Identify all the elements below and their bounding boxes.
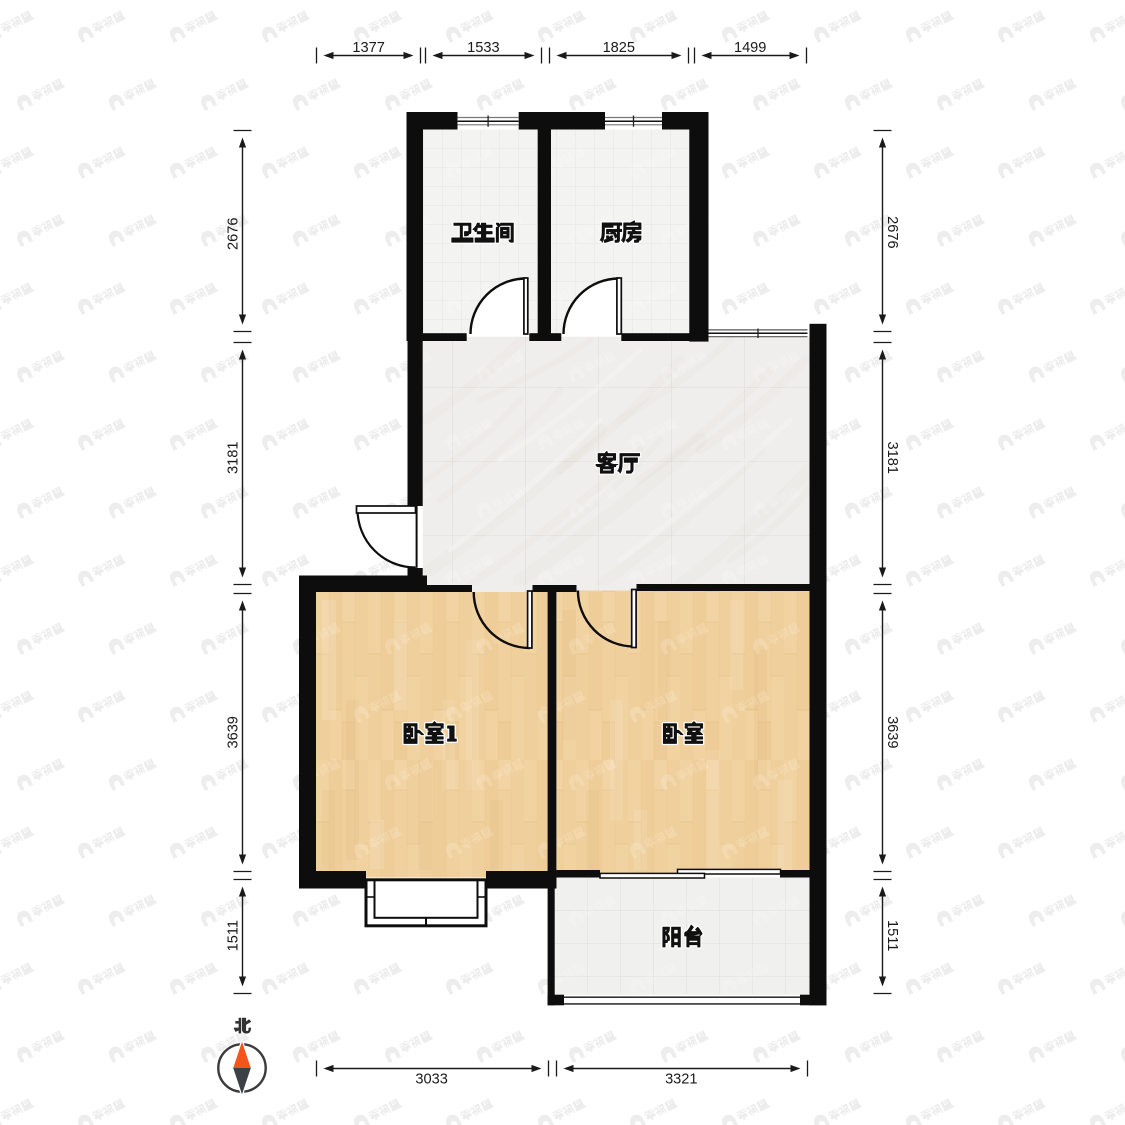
svg-text:2676: 2676 bbox=[226, 217, 242, 249]
svg-text:1499: 1499 bbox=[734, 40, 766, 56]
svg-text:3639: 3639 bbox=[884, 716, 900, 748]
svg-text:1825: 1825 bbox=[603, 40, 635, 56]
svg-text:1533: 1533 bbox=[467, 40, 499, 56]
svg-text:3639: 3639 bbox=[226, 716, 242, 748]
svg-text:3181: 3181 bbox=[226, 441, 242, 473]
svg-text:1511: 1511 bbox=[884, 920, 900, 951]
svg-text:1377: 1377 bbox=[352, 40, 384, 56]
svg-text:1511: 1511 bbox=[226, 920, 242, 951]
svg-text:2676: 2676 bbox=[884, 216, 900, 248]
svg-text:3181: 3181 bbox=[884, 441, 900, 473]
svg-text:3321: 3321 bbox=[665, 1072, 697, 1088]
svg-text:3033: 3033 bbox=[415, 1072, 447, 1088]
